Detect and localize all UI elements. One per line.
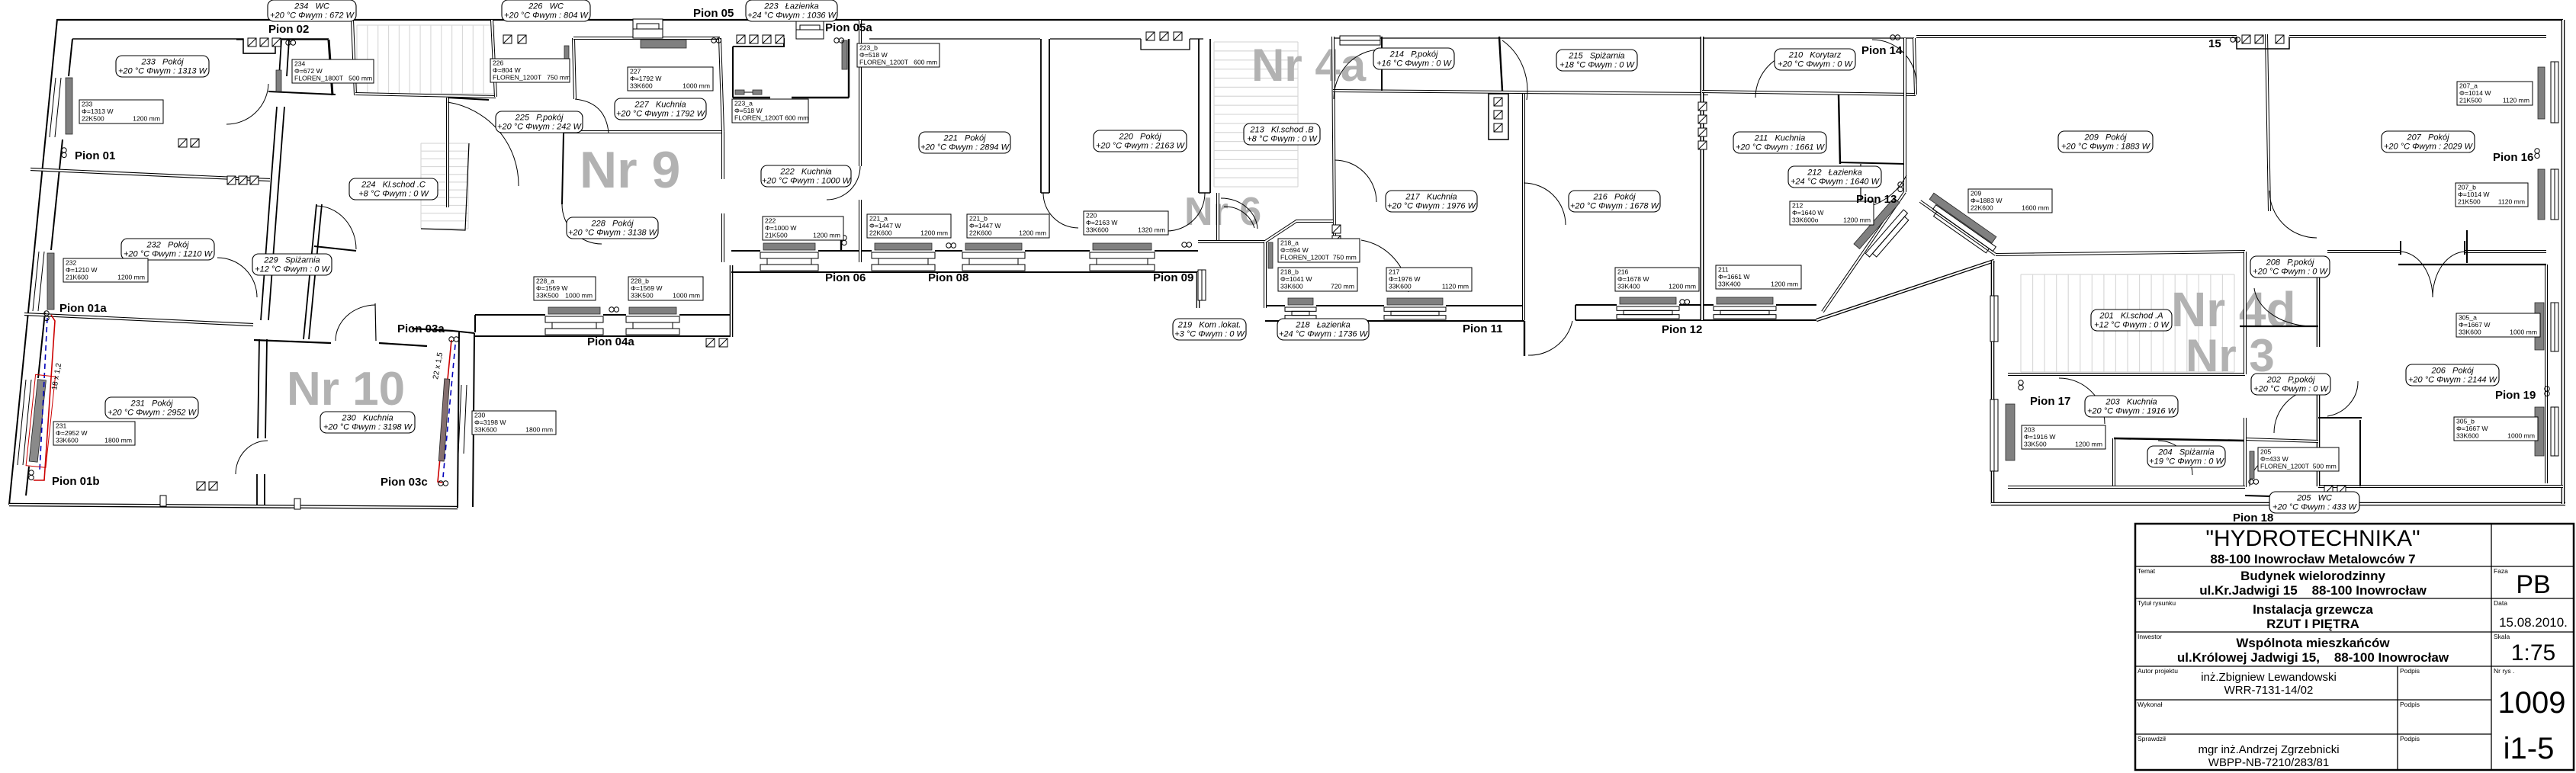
svg-text:221_b: 221_b: [969, 215, 988, 223]
svg-text:Pion 03c: Pion 03c: [381, 476, 428, 489]
svg-text:205: 205: [2260, 448, 2272, 456]
svg-text:Podpis: Podpis: [2400, 735, 2420, 743]
svg-text:+20 °C Φwym : 2144 W: +20 °C Φwym : 2144 W: [2408, 376, 2498, 385]
svg-text:201 Kl.schod .A: 201 Kl.schod .A: [2099, 312, 2163, 321]
svg-text:i1-5: i1-5: [2504, 732, 2555, 765]
svg-text:212: 212: [1792, 202, 1804, 210]
svg-text:+20 °C Φwym : 3198 W: +20 °C Φwym : 3198 W: [323, 423, 413, 432]
svg-text:220 Pokój: 220 Pokój: [1118, 133, 1161, 142]
svg-text:Φ=1916 W: Φ=1916 W: [2024, 433, 2056, 441]
svg-text:Φ=2163 W: Φ=2163 W: [1086, 219, 1118, 226]
svg-text:Φ=694 W: Φ=694 W: [1280, 246, 1309, 254]
svg-text:Φ=1667 W: Φ=1667 W: [2459, 321, 2491, 329]
svg-text:1320 mm: 1320 mm: [1138, 226, 1165, 234]
svg-text:+20 °C Φwym : 242 W: +20 °C Φwym : 242 W: [497, 123, 583, 132]
svg-text:FLOREN_1200T 500 mm: FLOREN_1200T 500 mm: [2260, 463, 2337, 470]
svg-text:305_a: 305_a: [2459, 314, 2477, 322]
svg-text:216: 216: [1617, 268, 1629, 276]
svg-text:232: 232: [66, 259, 77, 267]
svg-text:210 Korytarz: 210 Korytarz: [1788, 51, 1842, 60]
svg-text:230 Kuchnia: 230 Kuchnia: [341, 414, 393, 423]
svg-text:1200 mm: 1200 mm: [1669, 283, 1696, 290]
svg-text:227: 227: [630, 68, 641, 75]
svg-text:+20 °C Φwym : 672 W: +20 °C Φwym : 672 W: [270, 11, 355, 21]
svg-text:Autor projektu: Autor projektu: [2138, 667, 2178, 675]
svg-text:Φ=1014 W: Φ=1014 W: [2459, 89, 2491, 97]
svg-text:33K500: 33K500: [536, 292, 559, 300]
svg-text:217: 217: [1389, 268, 1400, 276]
svg-text:33K500: 33K500: [631, 292, 654, 300]
svg-text:1200 mm: 1200 mm: [1771, 281, 1798, 288]
svg-text:Pion 08: Pion 08: [928, 271, 968, 284]
svg-text:226 WC: 226 WC: [528, 2, 564, 11]
svg-text:220: 220: [1086, 212, 1097, 220]
svg-text:+20 °C Φwym : 2163 W: +20 °C Φwym : 2163 W: [1096, 142, 1186, 151]
svg-text:305_b: 305_b: [2456, 418, 2475, 425]
svg-text:233: 233: [82, 101, 93, 108]
svg-text:Nr 4a: Nr 4a: [1251, 40, 1367, 91]
svg-text:Pion 13: Pion 13: [1856, 193, 1897, 206]
svg-text:Φ=1000 W: Φ=1000 W: [765, 224, 797, 232]
svg-text:+24 °C Φwym : 1036 W: +24 °C Φwym : 1036 W: [747, 11, 837, 21]
svg-text:+8 °C Φwym : 0 W: +8 °C Φwym : 0 W: [358, 190, 429, 199]
svg-text:+8 °C Φwym : 0 W: +8 °C Φwym : 0 W: [1247, 135, 1318, 144]
svg-text:+20 °C Φwym : 1313 W: +20 °C Φwym : 1313 W: [118, 67, 208, 76]
svg-text:Pion 04a: Pion 04a: [587, 335, 634, 348]
svg-text:202 P,pokój: 202 P,pokój: [2266, 376, 2315, 385]
svg-text:Φ=518 W: Φ=518 W: [859, 51, 888, 59]
svg-text:1200 mm: 1200 mm: [2075, 441, 2102, 448]
svg-text:1200 mm: 1200 mm: [813, 232, 840, 239]
svg-text:33K600: 33K600: [474, 426, 497, 434]
svg-text:218 Łazienka: 218 Łazienka: [1295, 321, 1351, 330]
svg-text:229 Spiżarnia: 229 Spiżarnia: [263, 256, 320, 265]
svg-text:22K600: 22K600: [969, 229, 992, 237]
svg-text:33K400: 33K400: [1718, 281, 1741, 288]
svg-text:Φ=1041 W: Φ=1041 W: [1280, 275, 1312, 283]
svg-text:Sprawdził: Sprawdził: [2138, 735, 2166, 743]
svg-text:231: 231: [56, 422, 67, 430]
svg-text:1200 mm: 1200 mm: [133, 115, 160, 123]
svg-text:+20 °C Φwym : 2894 W: +20 °C Φwym : 2894 W: [920, 143, 1010, 152]
svg-text:Φ=3198 W: Φ=3198 W: [474, 419, 506, 426]
svg-text:15: 15: [2208, 37, 2221, 50]
svg-text:206 Pokój: 206 Pokój: [2430, 367, 2474, 376]
svg-text:207 Pokój: 207 Pokój: [2406, 133, 2449, 143]
svg-text:Φ=1014 W: Φ=1014 W: [2458, 191, 2490, 198]
svg-text:22K600: 22K600: [869, 229, 892, 237]
svg-text:21K500: 21K500: [2459, 97, 2482, 104]
svg-text:203 Kuchnia: 203 Kuchnia: [2105, 398, 2157, 407]
svg-text:Φ=1661 W: Φ=1661 W: [1718, 273, 1750, 281]
svg-text:+16 °C Φwym : 0 W: +16 °C Φwym : 0 W: [1376, 59, 1452, 69]
svg-text:214 P,pokój: 214 P,pokój: [1389, 50, 1438, 59]
svg-text:"HYDROTECHNIKA": "HYDROTECHNIKA": [2205, 526, 2420, 551]
svg-text:1000 mm: 1000 mm: [673, 292, 700, 300]
svg-text:Tytuł rysunku: Tytuł rysunku: [2138, 599, 2176, 607]
svg-text:Temat: Temat: [2138, 567, 2156, 575]
svg-text:1000 mm: 1000 mm: [683, 82, 710, 90]
svg-text:1600 mm: 1600 mm: [2022, 204, 2049, 212]
svg-text:mgr inż.Andrzej Zgrzebnicki: mgr inż.Andrzej Zgrzebnicki: [2198, 743, 2339, 756]
svg-text:205 WC: 205 WC: [2296, 494, 2332, 503]
svg-text:Pion 01a: Pion 01a: [59, 302, 107, 315]
svg-text:225 P,pokój: 225 P,pokój: [515, 114, 564, 123]
svg-text:33K600: 33K600: [2456, 432, 2479, 440]
svg-text:21K500: 21K500: [2458, 198, 2481, 206]
svg-text:222: 222: [765, 217, 776, 225]
svg-text:Φ=672 W: Φ=672 W: [294, 67, 323, 75]
svg-text:227 Kuchnia: 227 Kuchnia: [634, 101, 686, 110]
svg-text:Φ=1313 W: Φ=1313 W: [82, 107, 114, 115]
svg-text:FLOREN_1800T 500 mm: FLOREN_1800T 500 mm: [294, 75, 372, 82]
svg-text:207_b: 207_b: [2458, 184, 2476, 191]
svg-text:219 Kom .lokat.: 219 Kom .lokat.: [1177, 321, 1241, 330]
svg-text:Pion 09: Pion 09: [1153, 271, 1193, 284]
svg-text:Φ=804 W: Φ=804 W: [493, 66, 522, 74]
svg-text:Budynek wielorodzinny: Budynek wielorodzinny: [2240, 569, 2385, 583]
svg-text:1800 mm: 1800 mm: [525, 426, 553, 434]
svg-text:203: 203: [2024, 426, 2035, 434]
svg-text:Φ=1667 W: Φ=1667 W: [2456, 425, 2488, 432]
svg-text:1120 mm: 1120 mm: [2498, 198, 2525, 206]
svg-text:209 Pokój: 209 Pokój: [2083, 133, 2127, 143]
svg-text:Faza: Faza: [2494, 567, 2508, 575]
svg-text:228_a: 228_a: [536, 277, 554, 285]
svg-text:Φ=1678 W: Φ=1678 W: [1617, 275, 1649, 283]
svg-text:1120 mm: 1120 mm: [2503, 97, 2529, 104]
svg-text:PB: PB: [2516, 570, 2550, 599]
svg-text:Φ=518 W: Φ=518 W: [734, 107, 763, 114]
svg-text:Pion 05: Pion 05: [693, 7, 734, 20]
svg-text:223_b: 223_b: [859, 44, 878, 52]
svg-text:33K600: 33K600: [1280, 283, 1303, 290]
svg-text:Instalacja grzewcza: Instalacja grzewcza: [2253, 602, 2373, 617]
svg-text:Inwestor: Inwestor: [2138, 633, 2162, 640]
svg-text:inż.Zbigniew Lewandowski: inż.Zbigniew Lewandowski: [2201, 671, 2337, 684]
svg-text:1000 mm: 1000 mm: [565, 292, 593, 300]
svg-text:207_a: 207_a: [2459, 82, 2478, 90]
svg-text:226: 226: [493, 59, 504, 67]
svg-text:228 Pokój: 228 Pokój: [590, 220, 634, 229]
svg-text:FLOREN_1200T 750 mm: FLOREN_1200T 750 mm: [1280, 254, 1357, 261]
svg-text:Wykonał: Wykonał: [2138, 701, 2163, 708]
svg-text:21K500: 21K500: [765, 232, 788, 239]
svg-text:Nr 4d: Nr 4d: [2171, 282, 2296, 337]
svg-text:+20 °C Φwym : 0 W: +20 °C Φwym : 0 W: [1778, 60, 1853, 69]
svg-text:218_a: 218_a: [1280, 239, 1299, 247]
svg-text:+24 °C Φwym : 1640 W: +24 °C Φwym : 1640 W: [1791, 178, 1881, 187]
svg-text:+12 °C Φwym : 0 W: +12 °C Φwym : 0 W: [2094, 321, 2170, 330]
svg-text:+18 °C Φwym : 0 W: +18 °C Φwym : 0 W: [1559, 61, 1635, 70]
svg-text:224 Kl.schod .C: 224 Kl.schod .C: [361, 181, 426, 190]
svg-text:WBPP-NB-7210/283/81: WBPP-NB-7210/283/81: [2208, 756, 2329, 769]
svg-text:+20 °C Φwym : 3138 W: +20 °C Φwym : 3138 W: [568, 229, 658, 238]
svg-text:ul.Kr.Jadwigi 15 88-100 Ino: ul.Kr.Jadwigi 15 88-100 Inowrocław: [2199, 583, 2427, 598]
svg-text:33K600o: 33K600o: [1792, 217, 1819, 224]
svg-text:218_b: 218_b: [1280, 268, 1299, 276]
svg-text:33K600: 33K600: [2459, 329, 2481, 336]
svg-text:215 Spiżarnia: 215 Spiżarnia: [1568, 52, 1624, 61]
svg-text:1000 mm: 1000 mm: [2510, 329, 2537, 336]
svg-text:217 Kuchnia: 217 Kuchnia: [1405, 193, 1457, 202]
svg-text:33K600: 33K600: [1086, 226, 1109, 234]
svg-text:231 Pokój: 231 Pokój: [130, 399, 173, 409]
svg-text:1:75: 1:75: [2511, 640, 2555, 666]
svg-text:22K600: 22K600: [1971, 204, 1993, 212]
svg-text:FLOREN_1200T 600 mm: FLOREN_1200T 600 mm: [734, 114, 808, 122]
svg-text:230: 230: [474, 412, 486, 419]
svg-text:211 Kuchnia: 211 Kuchnia: [1754, 134, 1805, 143]
svg-text:234 WC: 234 WC: [294, 2, 329, 11]
svg-text:Pion 06: Pion 06: [825, 271, 866, 284]
svg-text:Pion 17: Pion 17: [2030, 395, 2070, 408]
svg-text:Pion 11: Pion 11: [1463, 322, 1503, 335]
svg-text:213 Kl.schod .B: 213 Kl.schod .B: [1249, 126, 1313, 135]
svg-text:223_a: 223_a: [734, 100, 753, 107]
svg-text:Pion 18: Pion 18: [2233, 512, 2273, 524]
svg-text:1120 mm: 1120 mm: [1442, 283, 1469, 290]
svg-text:222 Kuchnia: 222 Kuchnia: [779, 168, 831, 177]
svg-text:221_a: 221_a: [869, 215, 888, 223]
svg-text:+20 °C Φwym : 2029 W: +20 °C Φwym : 2029 W: [2384, 143, 2474, 152]
svg-text:+20 °C Φwym : 433 W: +20 °C Φwym : 433 W: [2272, 503, 2358, 512]
svg-text:Φ=1976 W: Φ=1976 W: [1389, 275, 1421, 283]
svg-text:Pion 14: Pion 14: [1861, 44, 1903, 57]
svg-text:221 Pokój: 221 Pokój: [943, 134, 986, 143]
svg-text:+19 °C Φwym : 0 W: +19 °C Φwym : 0 W: [2149, 457, 2224, 467]
svg-text:ul.Królowej Jadwigi 15, 88-: ul.Królowej Jadwigi 15, 88-100 Inowrocła…: [2177, 650, 2449, 665]
svg-text:+12 °C Φwym : 0 W: +12 °C Φwym : 0 W: [255, 265, 330, 274]
svg-text:+20 °C Φwym : 0 W: +20 °C Φwym : 0 W: [2253, 385, 2329, 394]
svg-text:+20 °C Φwym : 2952 W: +20 °C Φwym : 2952 W: [108, 409, 198, 418]
svg-text:+20 °C Φwym : 1883 W: +20 °C Φwym : 1883 W: [2061, 143, 2151, 152]
svg-text:Φ=2952 W: Φ=2952 W: [56, 429, 88, 437]
svg-text:Nr 6: Nr 6: [1184, 190, 1261, 234]
svg-text:Skala: Skala: [2494, 633, 2510, 640]
svg-text:FLOREN_1200T 600 mm: FLOREN_1200T 600 mm: [859, 59, 937, 66]
svg-text:208 P,pokój: 208 P,pokój: [2266, 258, 2314, 268]
svg-text:+20 °C Φwym : 1678 W: +20 °C Φwym : 1678 W: [1570, 202, 1660, 211]
svg-text:21K600: 21K600: [66, 274, 88, 281]
svg-text:+24 °C Φwym : 1736 W: +24 °C Φwym : 1736 W: [1279, 330, 1369, 339]
svg-text:Pion 12: Pion 12: [1662, 323, 1702, 336]
svg-text:Φ=1447 W: Φ=1447 W: [969, 222, 1001, 229]
svg-text:Φ=1447 W: Φ=1447 W: [869, 222, 901, 229]
svg-text:+20 °C Φwym : 1000 W: +20 °C Φwym : 1000 W: [762, 177, 852, 186]
svg-text:+20 °C Φwym : 1916 W: +20 °C Φwym : 1916 W: [2087, 407, 2177, 416]
svg-text:33K600: 33K600: [1389, 283, 1412, 290]
svg-text:15.08.2010.: 15.08.2010.: [2499, 615, 2568, 630]
svg-text:216 Pokój: 216 Pokój: [1592, 193, 1636, 202]
svg-text:Wspólnota mieszkańców: Wspólnota mieszkańców: [2236, 636, 2390, 650]
svg-text:Data: Data: [2494, 599, 2507, 607]
svg-text:Pion 01: Pion 01: [75, 149, 115, 162]
svg-text:Φ=1883 W: Φ=1883 W: [1971, 197, 2003, 204]
svg-text:33K500: 33K500: [2024, 441, 2047, 448]
svg-text:Φ=1210 W: Φ=1210 W: [66, 266, 98, 274]
svg-text:Pion 02: Pion 02: [268, 23, 309, 36]
svg-text:Nr 10: Nr 10: [287, 363, 405, 415]
svg-text:Pion 05a: Pion 05a: [825, 21, 872, 34]
svg-text:Podpis: Podpis: [2400, 667, 2420, 675]
svg-text:+20 °C Φwym : 804 W: +20 °C Φwym : 804 W: [504, 11, 589, 21]
svg-text:1800 mm: 1800 mm: [104, 437, 132, 444]
svg-text:Φ=1792 W: Φ=1792 W: [630, 75, 662, 82]
svg-text:209: 209: [1971, 190, 1982, 197]
svg-text:204 Spiżarnia: 204 Spiżarnia: [2157, 448, 2214, 457]
svg-text:228_b: 228_b: [631, 277, 649, 285]
svg-text:Pion 03a: Pion 03a: [397, 322, 445, 335]
svg-text:720 mm: 720 mm: [1331, 283, 1354, 290]
svg-text:Φ=1640 W: Φ=1640 W: [1792, 209, 1824, 217]
svg-text:+3 °C Φwym : 0 W: +3 °C Φwym : 0 W: [1174, 330, 1245, 339]
svg-text:RZUT I PIĘTRA: RZUT I PIĘTRA: [2266, 617, 2359, 631]
svg-text:+20 °C Φwym : 1661 W: +20 °C Φwym : 1661 W: [1736, 143, 1826, 152]
svg-text:33K600: 33K600: [56, 437, 79, 444]
svg-text:1200 mm: 1200 mm: [117, 274, 145, 281]
svg-text:+20 °C Φwym : 1976 W: +20 °C Φwym : 1976 W: [1387, 202, 1477, 211]
svg-text:1000 mm: 1000 mm: [2507, 432, 2535, 440]
svg-text:Pion 16: Pion 16: [2493, 151, 2533, 164]
svg-text:212 Łazienka: 212 Łazienka: [1807, 168, 1862, 178]
svg-text:1200 mm: 1200 mm: [1843, 217, 1871, 224]
svg-text:1009: 1009: [2498, 686, 2566, 720]
svg-text:Podpis: Podpis: [2400, 701, 2420, 708]
svg-text:Pion 19: Pion 19: [2495, 389, 2536, 402]
svg-text:33K600: 33K600: [630, 82, 653, 90]
svg-text:1200 mm: 1200 mm: [1019, 229, 1046, 237]
svg-text:22K500: 22K500: [82, 115, 104, 123]
svg-text:+20 °C Φwym : 1792 W: +20 °C Φwym : 1792 W: [616, 110, 706, 119]
svg-text:223 Łazienka: 223 Łazienka: [763, 2, 819, 11]
svg-text:Nr rys .: Nr rys .: [2494, 667, 2514, 675]
svg-text:WRR-7131-14/02: WRR-7131-14/02: [2224, 684, 2314, 697]
svg-text:FLOREN_1200T 750 mm: FLOREN_1200T 750 mm: [493, 74, 570, 82]
svg-text:233 Pokój: 233 Pokój: [140, 58, 184, 67]
svg-text:88-100 Inowrocław Metalowców 7: 88-100 Inowrocław Metalowców 7: [2210, 552, 2415, 566]
svg-text:Φ=433 W: Φ=433 W: [2260, 455, 2289, 463]
svg-text:Φ=1569 W: Φ=1569 W: [631, 284, 663, 292]
svg-text:+20 °C Φwym : 0 W: +20 °C Φwym : 0 W: [2253, 268, 2328, 277]
svg-text:+20 °C Φwym : 1210 W: +20 °C Φwym : 1210 W: [124, 250, 214, 259]
svg-text:234: 234: [294, 60, 306, 68]
svg-text:Φ=1569 W: Φ=1569 W: [536, 284, 568, 292]
svg-text:211: 211: [1718, 266, 1729, 274]
svg-text:Pion 01b: Pion 01b: [52, 475, 100, 488]
svg-text:232 Pokój: 232 Pokój: [146, 241, 189, 250]
svg-text:Nr 9: Nr 9: [580, 141, 680, 199]
svg-text:1200 mm: 1200 mm: [920, 229, 948, 237]
svg-text:33K400: 33K400: [1617, 283, 1640, 290]
